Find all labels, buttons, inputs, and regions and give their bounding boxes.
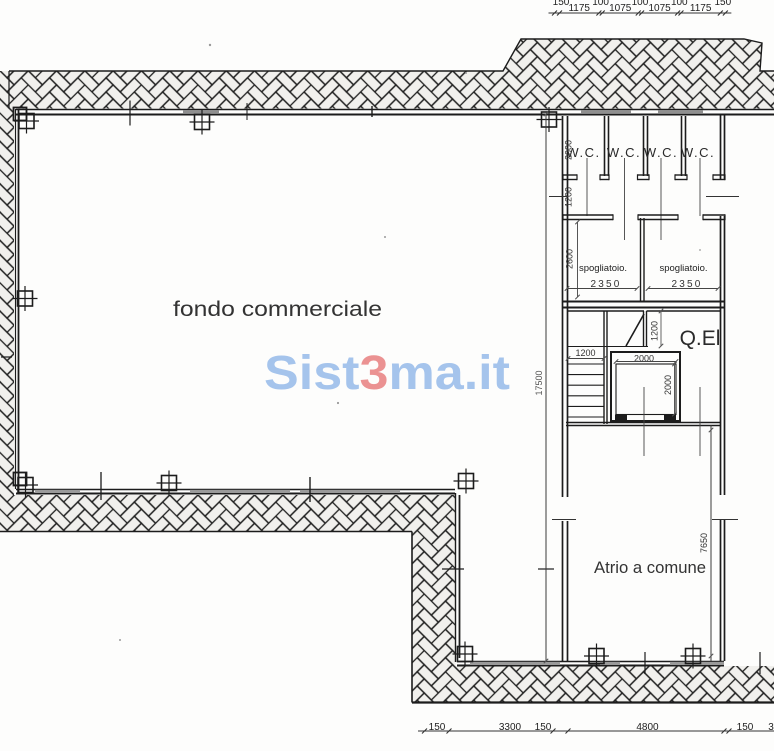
svg-text:fondo commerciale: fondo commerciale [173,298,382,321]
svg-text:3300: 3300 [499,722,522,733]
svg-text:W.C.: W.C. [607,145,641,160]
svg-text:W.C.: W.C. [681,145,715,160]
svg-text:3: 3 [768,722,774,733]
svg-text:spogliatoio.: spogliatoio. [579,263,627,274]
svg-text:2000: 2000 [634,354,654,364]
svg-text:2600: 2600 [565,249,575,269]
svg-text:1075: 1075 [648,3,671,14]
svg-text:Sist3ma.it: Sist3ma.it [264,347,510,400]
svg-text:4800: 4800 [636,722,659,733]
svg-text:1175: 1175 [568,3,590,14]
svg-text:Atrio a comune: Atrio a comune [594,558,706,577]
svg-text:150: 150 [737,722,754,733]
svg-text:2000: 2000 [663,375,673,395]
svg-text:150: 150 [714,0,731,8]
svg-text:7650: 7650 [699,533,709,553]
svg-text:1075: 1075 [609,3,632,14]
svg-text:150: 150 [535,722,552,733]
svg-text:1200: 1200 [650,321,660,341]
svg-text:spogliatoio.: spogliatoio. [659,263,707,274]
svg-text:Q.El: Q.El [680,327,721,350]
svg-text:1175: 1175 [690,3,712,14]
svg-text:100: 100 [671,0,688,8]
svg-text:150: 150 [429,722,446,733]
svg-text:150: 150 [553,0,570,8]
svg-text:2000: 2000 [564,140,574,160]
svg-text:17500: 17500 [534,370,544,395]
svg-text:100: 100 [592,0,609,8]
svg-text:1200: 1200 [575,348,595,358]
svg-text:W.C.: W.C. [644,145,678,160]
svg-text:100: 100 [632,0,649,8]
